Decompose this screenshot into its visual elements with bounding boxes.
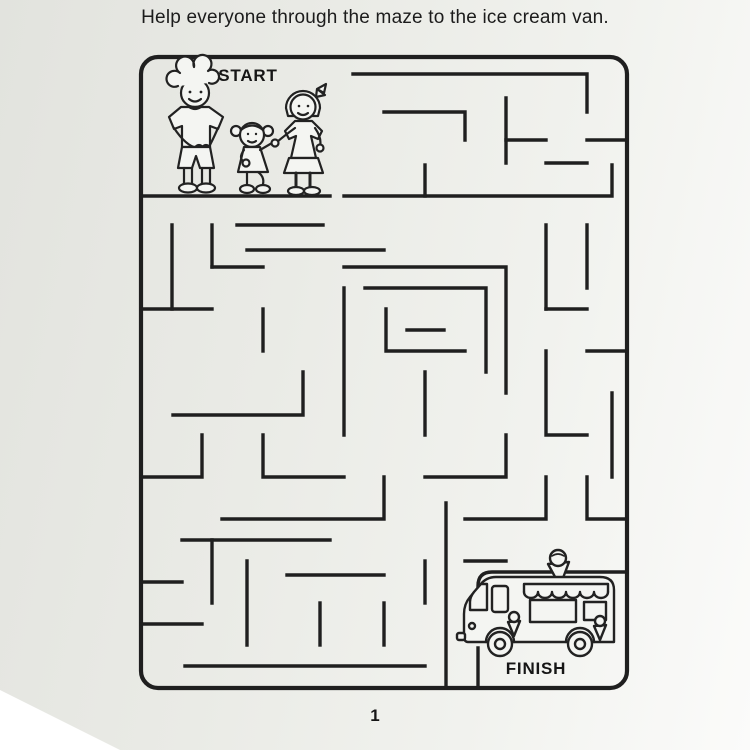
boy-figure <box>166 55 223 193</box>
bumper <box>457 633 465 640</box>
rear-wheel <box>568 632 592 656</box>
finish-label: FINISH <box>506 659 567 678</box>
serving-window <box>530 600 576 622</box>
page-number: 1 <box>0 706 750 726</box>
girl-small-figure <box>231 123 273 193</box>
headlight <box>469 623 475 629</box>
maze: START <box>0 0 750 750</box>
windshield <box>470 584 487 610</box>
ice-cream-van-illustration <box>457 550 614 656</box>
start-label: START <box>218 66 277 85</box>
door-window <box>492 586 508 612</box>
front-wheel <box>488 632 512 656</box>
girl-tall-figure <box>272 84 327 195</box>
